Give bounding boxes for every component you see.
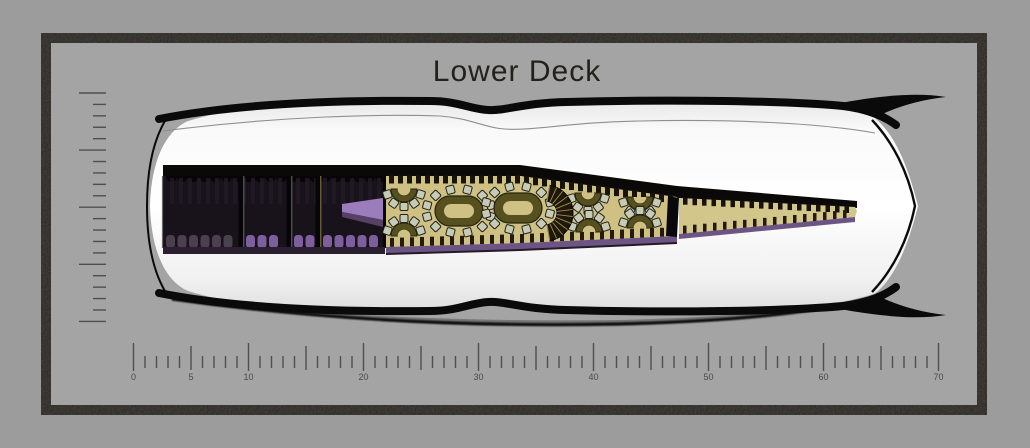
salon-bottom-rib	[530, 234, 534, 243]
bow-top-tooth	[693, 198, 698, 205]
salon-top-tooth	[407, 176, 412, 184]
salon-bottom-rib	[590, 231, 594, 240]
bow-top-tooth	[759, 202, 764, 209]
bow-bottom-rib	[823, 212, 827, 220]
bow-bottom-rib	[713, 223, 717, 231]
salon-top-tooth	[479, 176, 484, 184]
salon-bottom-rib	[400, 238, 404, 247]
bow-bottom-rib	[743, 220, 747, 228]
bow-top-tooth	[826, 205, 831, 212]
cabin-curtain-streak	[170, 178, 174, 204]
cabin-curtain-streak	[224, 178, 228, 204]
cabin-curtain-streak	[179, 178, 183, 204]
salon-bottom-rib	[650, 228, 654, 237]
cabin-curtain-streak	[332, 178, 336, 204]
h-ruler-label: 5	[188, 372, 193, 382]
bow-bottom-rib	[773, 217, 777, 225]
salon-bottom-rib	[510, 234, 514, 243]
bow-top-tooth	[702, 199, 707, 206]
cabin-curtain-streak	[359, 178, 363, 204]
h-ruler-label: 60	[818, 372, 828, 382]
cabin-underline-band	[163, 247, 385, 254]
salon-top-tooth	[596, 186, 601, 194]
salon-top-tooth	[578, 183, 583, 191]
salon-bottom-rib	[460, 236, 464, 245]
salon-bottom-rib	[640, 229, 644, 238]
salon-bottom-rib	[570, 232, 574, 241]
cabin-seat	[323, 235, 332, 248]
salon-top-tooth	[533, 177, 538, 185]
cabin-curtain-streak	[341, 178, 345, 204]
cabin-seat	[189, 235, 198, 248]
render-viewport: Lower Deck 0510203040506070	[0, 0, 1030, 448]
chair	[446, 185, 456, 195]
h-ruler-label: 20	[358, 372, 368, 382]
salon-top-tooth	[569, 182, 574, 190]
salon-bottom-rib	[430, 237, 434, 246]
bow-top-tooth	[807, 204, 812, 211]
bow-bottom-rib	[793, 215, 797, 223]
chair	[400, 215, 408, 223]
oval-table-center	[444, 204, 474, 218]
salon-top-tooth	[587, 184, 592, 192]
cabin-seat	[224, 235, 233, 248]
chair	[400, 203, 408, 211]
salon-top-tooth	[452, 176, 457, 184]
bow-top-tooth	[683, 198, 688, 205]
bow-bottom-rib	[733, 221, 737, 229]
bow-bottom-rib	[763, 218, 767, 226]
salon-top-tooth	[515, 176, 520, 184]
h-ruler-label: 30	[473, 372, 483, 382]
deck-title: Lower Deck	[433, 55, 601, 88]
bow-bulkhead	[666, 196, 679, 237]
bow-bottom-rib	[783, 216, 787, 224]
h-ruler-label: 10	[243, 372, 253, 382]
cabin-curtain-streak	[215, 178, 219, 204]
h-ruler-label: 70	[933, 372, 943, 382]
salon-top-tooth	[488, 176, 493, 184]
bow-top-tooth	[778, 203, 783, 210]
chair	[505, 224, 515, 234]
salon-bottom-rib	[520, 234, 524, 243]
salon-top-tooth	[461, 176, 466, 184]
salon-bottom-rib	[610, 230, 614, 239]
bow-top-tooth	[712, 199, 717, 206]
cabin-curtain-streak	[251, 178, 255, 204]
salon-bottom-rib	[540, 233, 544, 242]
cabin-curtain-streak	[260, 178, 264, 204]
deck-plan-scene: Lower Deck 0510203040506070	[0, 0, 1030, 448]
salon-top-tooth	[398, 176, 403, 184]
chair	[422, 212, 432, 222]
cabin-curtain-streak	[188, 178, 192, 204]
salon-bottom-rib	[620, 230, 624, 239]
salon-bottom-rib	[480, 235, 484, 244]
bow-bottom-rib	[813, 213, 817, 221]
salon-top-tooth	[434, 176, 439, 184]
cabin-seat	[201, 235, 210, 248]
cabin-seat	[369, 235, 378, 248]
h-ruler-label: 40	[588, 372, 598, 382]
salon-top-tooth	[605, 187, 610, 195]
salon-top-tooth	[497, 176, 502, 184]
cabin-seat	[335, 235, 344, 248]
bow-top-tooth	[769, 202, 774, 209]
bow-bottom-rib	[833, 211, 837, 219]
salon-top-tooth	[560, 181, 565, 189]
salon-top-tooth	[542, 178, 547, 186]
salon-bottom-rib	[390, 238, 394, 247]
bow-bottom-rib	[753, 219, 757, 227]
cabin-curtain-streak	[269, 178, 273, 204]
salon-top-tooth	[623, 189, 628, 197]
chair	[585, 211, 593, 219]
bow-bottom-rib	[843, 210, 847, 218]
salon-bottom-rib	[490, 235, 494, 244]
cabin-seat	[358, 235, 367, 248]
chair	[446, 227, 456, 237]
cabin-curtain-streak	[233, 178, 237, 204]
salon-top-tooth	[389, 176, 394, 184]
bow-top-tooth	[740, 201, 745, 208]
chair	[522, 182, 532, 192]
cabin-seat	[166, 235, 175, 248]
salon-top-tooth	[614, 188, 619, 196]
bow-bottom-rib	[703, 224, 707, 232]
salon-bottom-rib	[410, 237, 414, 246]
salon-top-tooth	[443, 176, 448, 184]
chair	[505, 182, 515, 192]
bow-bottom-rib	[723, 222, 727, 230]
cabin-seat	[269, 235, 278, 248]
cabin-seat	[246, 235, 255, 248]
bow-top-tooth	[731, 200, 736, 207]
salon-bottom-rib	[660, 228, 664, 237]
cabin-curtain-streak	[350, 178, 354, 204]
salon-bottom-rib	[450, 236, 454, 245]
chair	[481, 197, 491, 207]
cabin-curtain-streak	[206, 178, 210, 204]
chair	[545, 209, 555, 219]
chair	[636, 207, 644, 215]
bow-top-tooth	[816, 205, 821, 212]
bow-top-tooth	[788, 203, 793, 210]
salon-bottom-rib	[630, 229, 634, 238]
salon-bottom-rib	[470, 235, 474, 244]
salon-bottom-rib	[440, 236, 444, 245]
cabin-seat	[212, 235, 221, 248]
cabin-curtain-streak	[278, 178, 282, 204]
oval-table-center	[503, 201, 533, 215]
h-ruler-label: 50	[703, 372, 713, 382]
chair	[463, 227, 473, 237]
salon-top-tooth	[470, 176, 475, 184]
h-ruler-label: 0	[131, 372, 136, 382]
cabin-divider-wall	[287, 176, 292, 248]
chair	[522, 224, 532, 234]
cabin-seat	[258, 235, 267, 248]
bow-bottom-rib	[803, 214, 807, 222]
bow-bottom-rib	[683, 226, 687, 234]
cabin-divider-wall	[239, 176, 244, 248]
bow-top-tooth	[750, 201, 755, 208]
salon-bottom-rib	[500, 235, 504, 244]
cabin-curtain-streak	[197, 178, 201, 204]
salon-top-tooth	[425, 176, 430, 184]
cabin-seat	[294, 235, 303, 248]
chair	[422, 200, 432, 210]
cabin-seat	[178, 235, 187, 248]
chair	[481, 209, 491, 219]
bow-top-tooth	[797, 204, 802, 211]
cabin-curtain-streak	[296, 178, 300, 204]
cabin-divider-wall	[316, 176, 321, 248]
chair	[463, 185, 473, 195]
cabin-curtain-streak	[323, 178, 327, 204]
cabin-curtain-streak	[305, 178, 309, 204]
salon-top-tooth	[416, 176, 421, 184]
cabin-seat	[306, 235, 315, 248]
salon-bottom-rib	[580, 231, 584, 240]
bow-bottom-rib	[693, 225, 697, 233]
salon-bottom-rib	[420, 237, 424, 246]
bow-top-tooth	[721, 200, 726, 207]
cabin-seat	[346, 235, 355, 248]
